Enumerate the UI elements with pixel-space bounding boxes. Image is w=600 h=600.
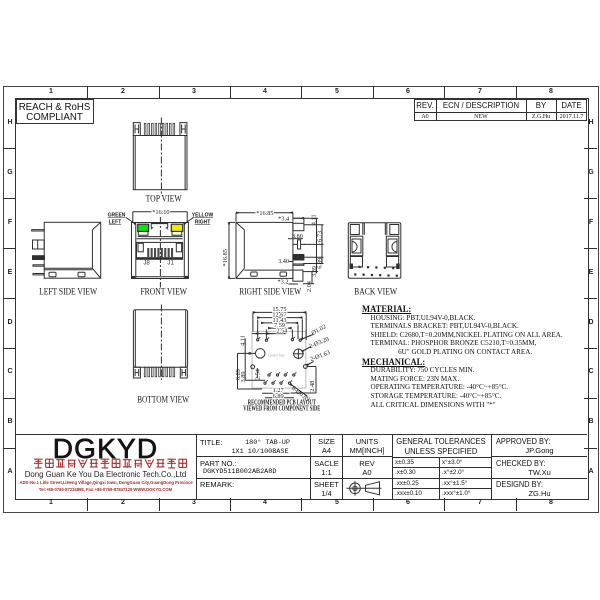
svg-text:3.89: 3.89 (240, 371, 247, 382)
svg-text:FRONT VIEW: FRONT VIEW (140, 288, 187, 298)
svg-text:J8: J8 (143, 260, 150, 267)
svg-text:2.04: 2.04 (306, 280, 313, 292)
svg-text:6.89: 6.89 (273, 393, 284, 400)
svg-text:J1: J1 (167, 260, 174, 267)
svg-text:BACK VIEW: BACK VIEW (354, 288, 397, 298)
svg-text:*16.85: *16.85 (222, 249, 229, 266)
svg-text:2.54: 2.54 (276, 327, 288, 334)
svg-text:Center line: Center line (268, 353, 285, 357)
svg-text:RIGHT: RIGHT (195, 220, 211, 226)
svg-text:6.73: 6.73 (316, 231, 323, 242)
svg-text:*16.85: *16.85 (256, 210, 273, 217)
svg-text:TOP VIEW: TOP VIEW (146, 194, 182, 204)
svg-text:RIGHT SIDE VIEW: RIGHT SIDE VIEW (239, 288, 301, 298)
svg-text:3.80: 3.80 (292, 233, 303, 240)
svg-text:4.11: 4.11 (240, 335, 247, 346)
svg-text:2-Ø3.20: 2-Ø3.20 (308, 336, 330, 350)
svg-text:2.48: 2.48 (309, 381, 316, 392)
svg-text:GREEN: GREEN (108, 213, 126, 219)
svg-text:*3.2: *3.2 (277, 279, 288, 286)
svg-text:2.54: 2.54 (254, 368, 261, 380)
svg-text:3.40: 3.40 (278, 258, 289, 265)
svg-text:LEFT SIDE VIEW: LEFT SIDE VIEW (39, 288, 97, 298)
svg-text:BOTTOM VIEW: BOTTOM VIEW (137, 395, 189, 405)
svg-text:2-Ø1.63: 2-Ø1.63 (309, 349, 331, 363)
svg-text:Ø1.02: Ø1.02 (310, 323, 327, 337)
svg-text:*3.4: *3.4 (278, 215, 290, 222)
svg-text:YELLOW: YELLOW (192, 213, 214, 219)
svg-text:*16.10: *16.10 (152, 209, 169, 216)
svg-text:4.11: 4.11 (311, 214, 318, 225)
svg-text:3.89: 3.89 (311, 266, 318, 277)
svg-text:LEFT: LEFT (109, 220, 122, 226)
svg-text:VIEWED FROM COMPONENT SIDE: VIEWED FROM COMPONENT SIDE (243, 406, 320, 413)
